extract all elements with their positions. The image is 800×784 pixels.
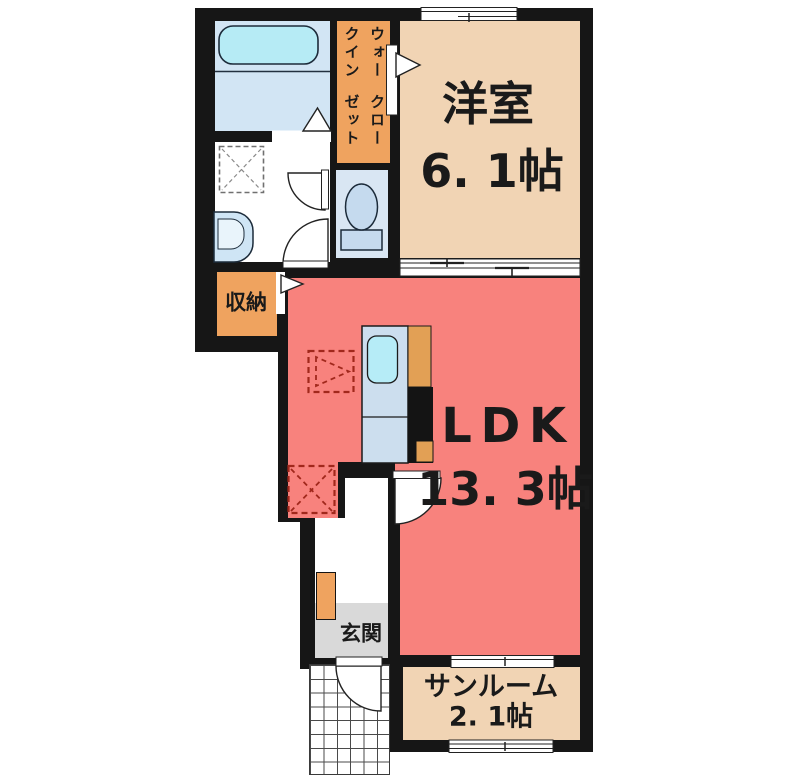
label-ldk-name: LDK bbox=[441, 402, 575, 450]
label-western-name: 洋室 bbox=[442, 81, 534, 127]
room-western bbox=[400, 21, 580, 258]
label-entrance: 玄関 bbox=[340, 624, 382, 645]
label-walk-in-closet: ウォークインクローゼット bbox=[338, 26, 389, 161]
wall-kitchen-stub bbox=[338, 462, 395, 478]
wic-line-2: クローゼット bbox=[338, 94, 389, 162]
floorplan: 洋室 6. 1帖 LDK 13. 3帖 サンルーム 2. 1帖 玄関 収納 ウォ… bbox=[0, 0, 800, 784]
label-western-area: 6. 1帖 bbox=[420, 148, 564, 194]
room-bathroom bbox=[215, 21, 330, 131]
wic-line-1: ウォークイン bbox=[338, 26, 389, 94]
shoe-cabinet bbox=[316, 572, 336, 620]
room-washroom bbox=[215, 142, 330, 262]
label-sunroom-area: 2. 1帖 bbox=[449, 704, 533, 731]
label-storage: 収納 bbox=[225, 293, 267, 314]
label-sunroom-name: サンルーム bbox=[424, 674, 558, 701]
hallway-upper bbox=[345, 478, 388, 523]
room-toilet bbox=[336, 170, 388, 258]
porch-tiles bbox=[309, 664, 390, 775]
wall-corridor-right bbox=[388, 477, 400, 658]
label-ldk-area: 13. 3帖 bbox=[417, 466, 593, 512]
